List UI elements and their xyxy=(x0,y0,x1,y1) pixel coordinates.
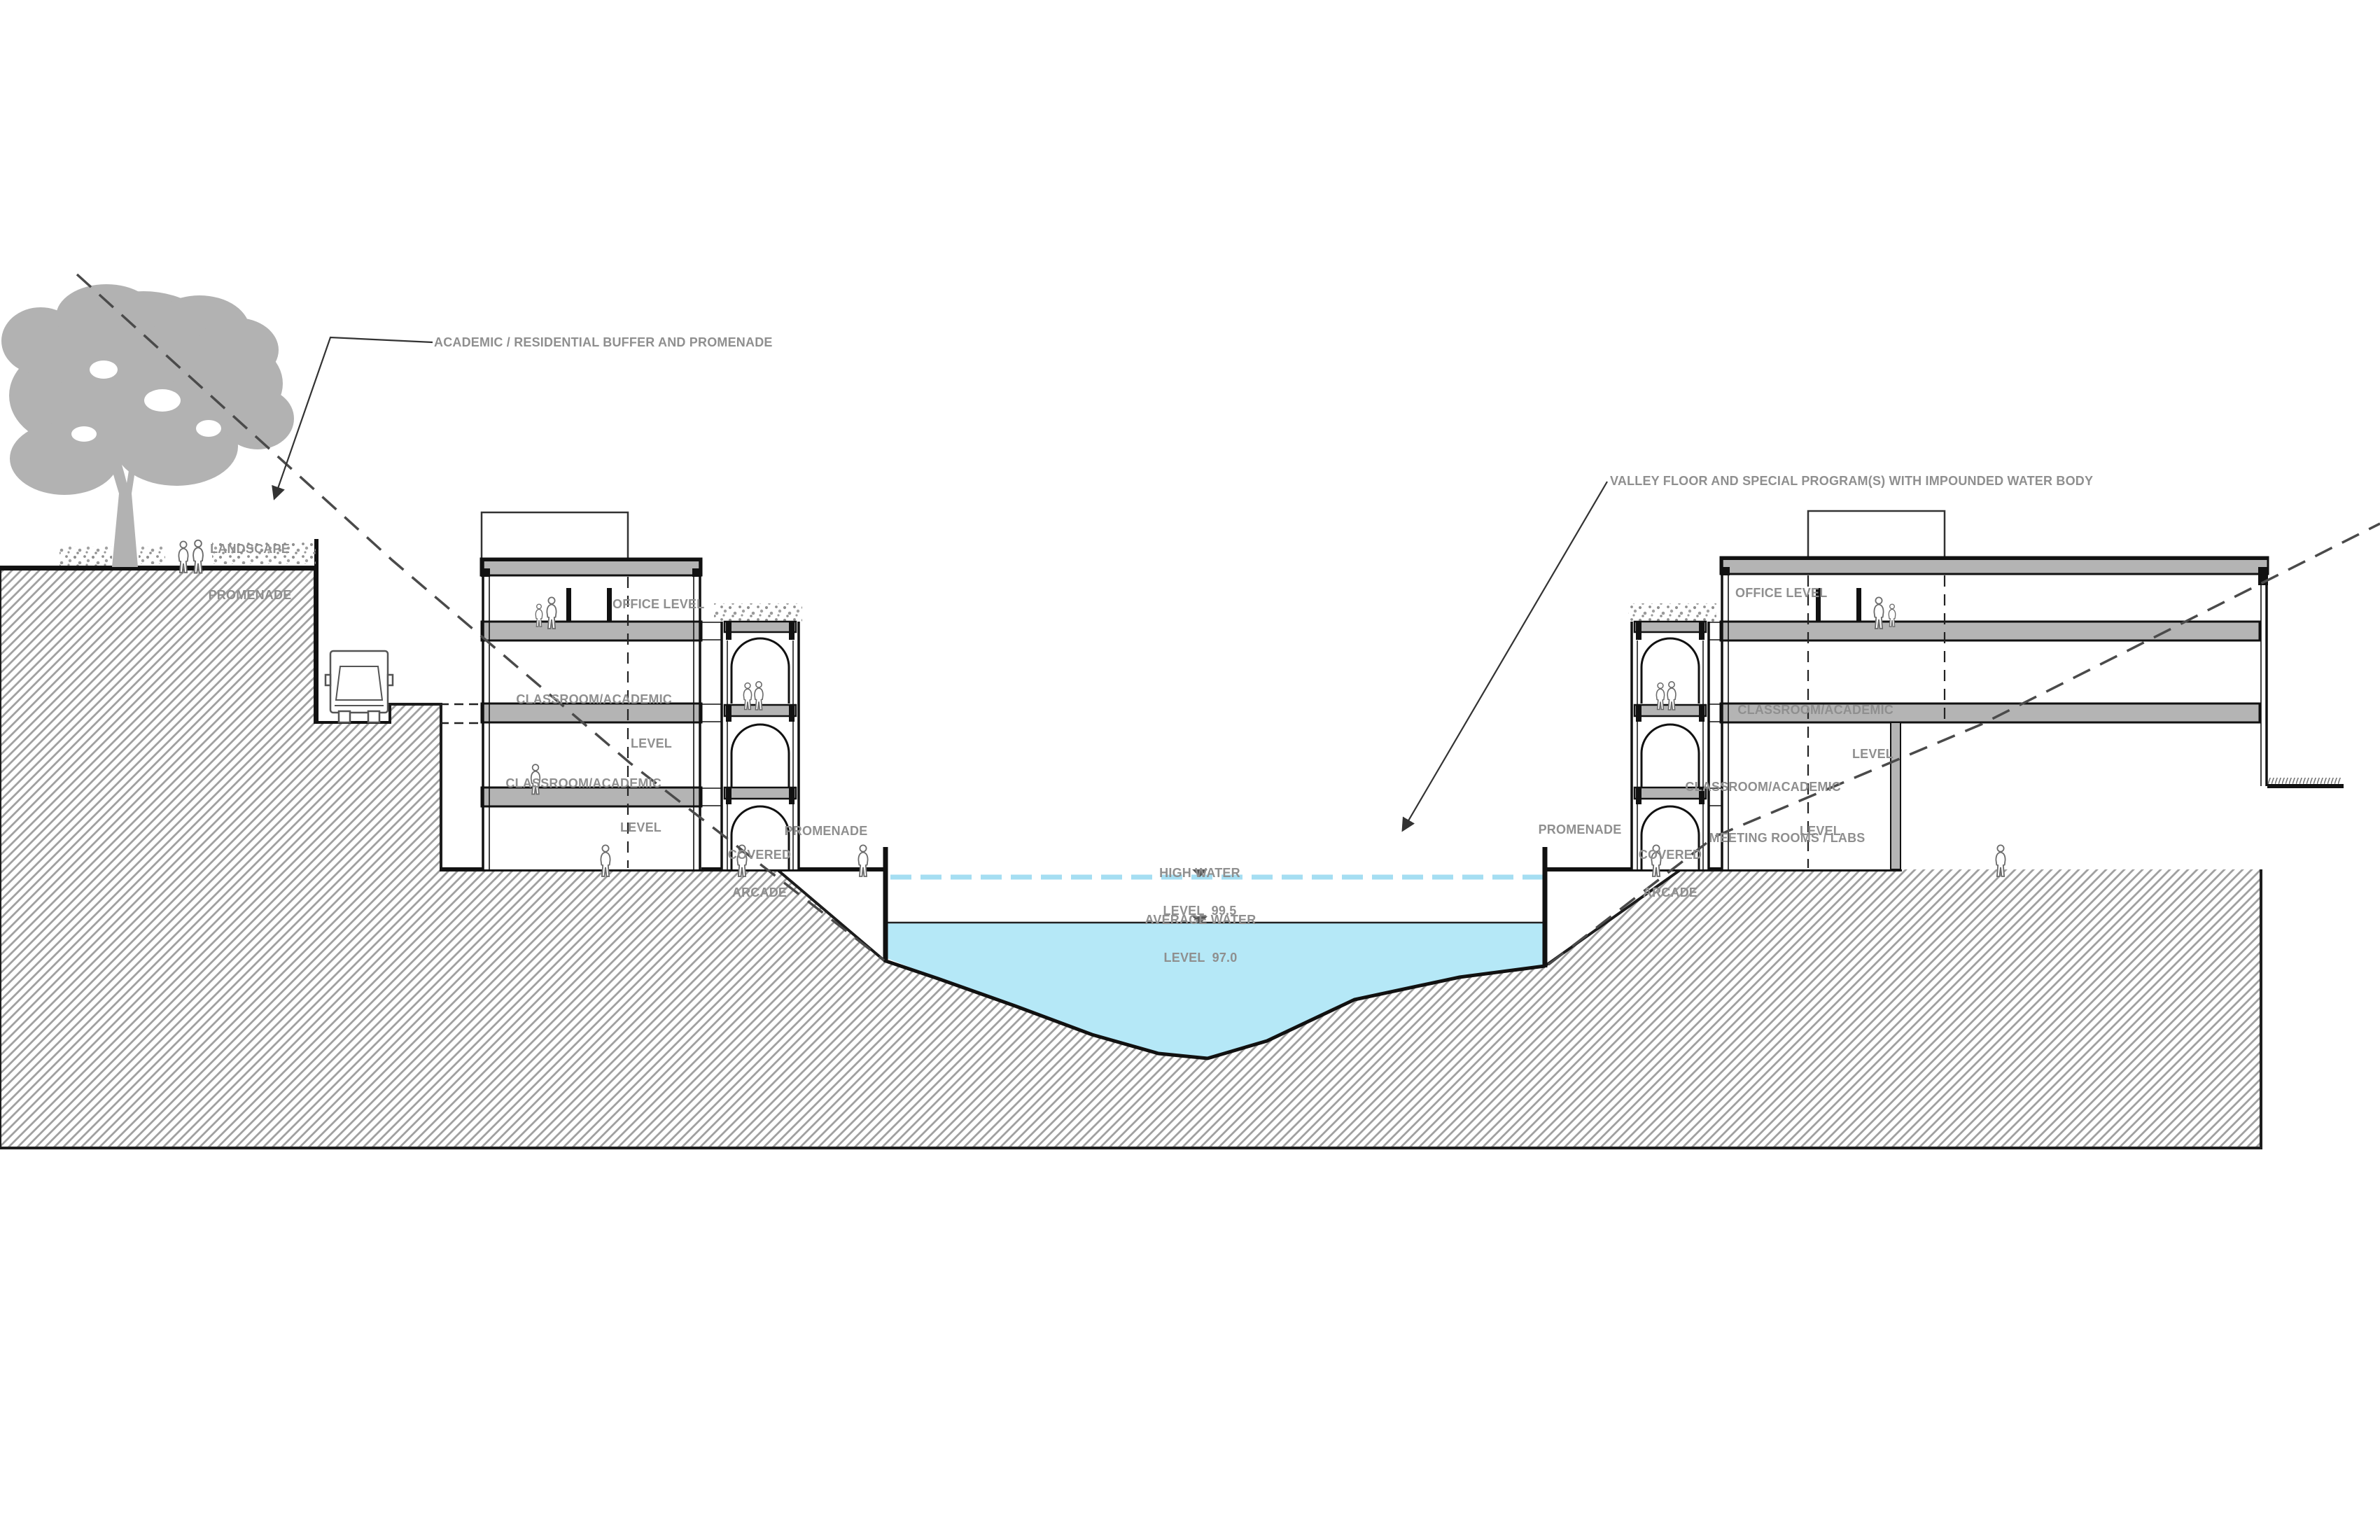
railing-post xyxy=(607,588,612,622)
hidden-tunnel-lines xyxy=(440,704,486,723)
left-clerestory xyxy=(482,512,628,559)
label-right-office-level: OFFICE LEVEL xyxy=(1735,586,1827,601)
tower-roof-planting xyxy=(1628,603,1716,622)
label-average-water: AVERAGE WATER LEVEL 97.0 xyxy=(1145,888,1256,976)
label-left-office-level: OFFICE LEVEL xyxy=(612,597,704,612)
section-drawing: ACADEMIC / RESIDENTIAL BUFFER AND PROMEN… xyxy=(0,0,2380,1540)
leader-lines xyxy=(274,337,1607,830)
label-academic-buffer: ACADEMIC / RESIDENTIAL BUFFER AND PROMEN… xyxy=(434,335,773,350)
drawing-canvas xyxy=(0,0,2380,1540)
railing-post xyxy=(566,588,571,622)
label-left-covered-arcade: COVERED ARCADE xyxy=(728,823,791,911)
label-left-classroom-lower: CLASSROOM/ACADEMIC LEVEL xyxy=(505,747,661,850)
railing-post xyxy=(1856,588,1861,622)
label-meeting-rooms-labs: MEETING ROOMS / LABS xyxy=(1709,831,1865,846)
right-clerestory xyxy=(1808,511,1945,557)
truck xyxy=(325,651,393,722)
label-left-promenade: PROMENADE xyxy=(785,824,868,839)
label-right-promenade: PROMENADE xyxy=(1539,822,1622,837)
label-valley-floor: VALLEY FLOOR AND SPECIAL PROGRAM(S) WITH… xyxy=(1610,474,2093,489)
label-landscape-promenade: LANDSCAPE PROMENADE xyxy=(209,510,292,618)
tower-roof-planting xyxy=(714,603,802,622)
label-right-covered-arcade: COVERED ARCADE xyxy=(1639,823,1702,911)
